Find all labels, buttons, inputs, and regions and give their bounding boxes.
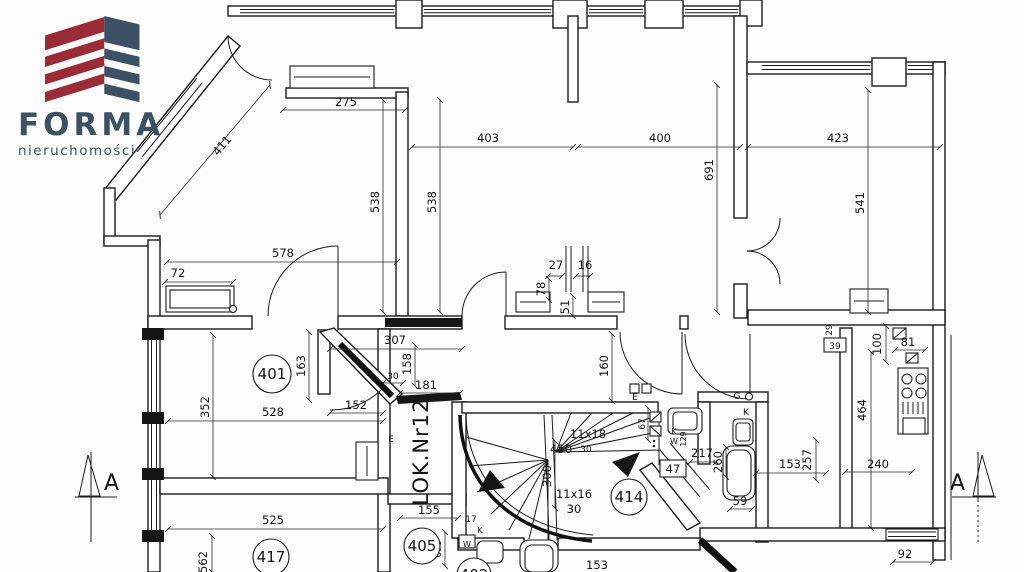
logo-red-face xyxy=(45,17,104,102)
room-number-401: 401 xyxy=(258,365,287,383)
boxed-label-47: 47 xyxy=(666,462,681,476)
labels-layer: 275 403 400 423 411 691 538 538 541 578 … xyxy=(171,95,916,572)
dim-label: 257 xyxy=(800,449,814,471)
dim-label: 538 xyxy=(425,191,439,213)
windows-layer xyxy=(137,10,938,543)
dim-label: 129 xyxy=(679,431,688,446)
unit-label: LOK.Nr12 xyxy=(409,399,433,506)
meter-label: E xyxy=(388,435,394,445)
room-number-405: 405 xyxy=(408,537,437,555)
stair-direction-arrow xyxy=(612,452,640,477)
meter-label: K xyxy=(477,526,483,535)
dim-label: 153 xyxy=(779,457,801,471)
dim-label: 181 xyxy=(415,378,437,392)
gas-meter-icon xyxy=(746,393,753,400)
dim-label: 17 xyxy=(465,515,476,525)
room-number-402: 402 xyxy=(460,566,489,572)
dim-label: 423 xyxy=(827,131,849,145)
dim-label: 275 xyxy=(335,95,357,109)
meter-label: W xyxy=(463,540,471,549)
dim-label: 578 xyxy=(272,246,294,260)
dim-label: 541 xyxy=(853,192,867,214)
room-number-417: 417 xyxy=(257,548,286,566)
dim-label: 307 xyxy=(384,333,406,347)
dim-label: 152 xyxy=(345,398,367,412)
dim-label: 352 xyxy=(198,396,212,418)
dim-label: 78 xyxy=(534,282,548,297)
dim-label: 163 xyxy=(294,355,308,377)
stove-icon xyxy=(898,368,928,434)
logo-brand: FORMA xyxy=(18,110,188,141)
meter-icon xyxy=(630,384,639,393)
dim-label: 538 xyxy=(368,191,382,213)
dim-label: 240 xyxy=(867,457,889,471)
logo-slate-face xyxy=(104,16,139,102)
section-letter-right: A xyxy=(950,471,965,496)
section-letter-left: A xyxy=(104,471,119,496)
dim-label: 67 xyxy=(638,418,648,429)
dim-label: 160 xyxy=(597,355,611,377)
room-number-414: 414 xyxy=(615,488,644,506)
meter-label: K xyxy=(671,427,677,436)
stair-label: 450 xyxy=(550,442,572,456)
dim-label: 217 xyxy=(691,446,713,460)
stair-label: 11x16 xyxy=(556,487,592,501)
dim-label: 260 xyxy=(711,451,725,473)
dim-label: 158 xyxy=(400,353,414,375)
dim-label: 300 xyxy=(540,465,554,487)
dim-label: 153 xyxy=(586,558,608,572)
gas-label: G xyxy=(734,392,741,402)
dim-label: 525 xyxy=(262,513,284,527)
dim-label: 528 xyxy=(262,405,284,419)
dim-label: 81 xyxy=(901,335,916,349)
stair-label: 30 xyxy=(567,502,582,516)
meter-icon xyxy=(642,384,651,393)
logo: FORMA nieruchomości xyxy=(18,4,188,159)
boxed-label-39: 39 xyxy=(829,342,841,352)
stair-label: 11x18 xyxy=(570,427,606,441)
dim-label: 59 xyxy=(733,494,748,508)
logo-building-icon xyxy=(18,4,148,104)
dim-label: 464 xyxy=(855,399,869,421)
meter-label: E xyxy=(632,393,638,403)
dim-label: 100 xyxy=(870,333,884,355)
dim-label: 51 xyxy=(558,300,572,315)
staircase xyxy=(460,413,661,543)
dim-label: 72 xyxy=(171,266,186,280)
dim-label: 92 xyxy=(898,547,913,561)
dim-label: 411 xyxy=(210,133,235,159)
stair-label: 30 xyxy=(580,445,592,455)
dim-label: 691 xyxy=(702,159,716,181)
logo-subtitle: nieruchomości xyxy=(18,143,188,159)
meter-label: K xyxy=(743,408,750,418)
dim-label: 403 xyxy=(477,131,499,145)
dim-label: 400 xyxy=(649,131,671,145)
dim-label: 562 xyxy=(196,551,210,572)
meter-label: W xyxy=(670,437,678,446)
dim-label: 29 xyxy=(825,324,835,336)
dim-label: 27 xyxy=(549,258,564,272)
dim-label: 16 xyxy=(578,258,593,272)
dim-label: 30 xyxy=(387,372,399,382)
